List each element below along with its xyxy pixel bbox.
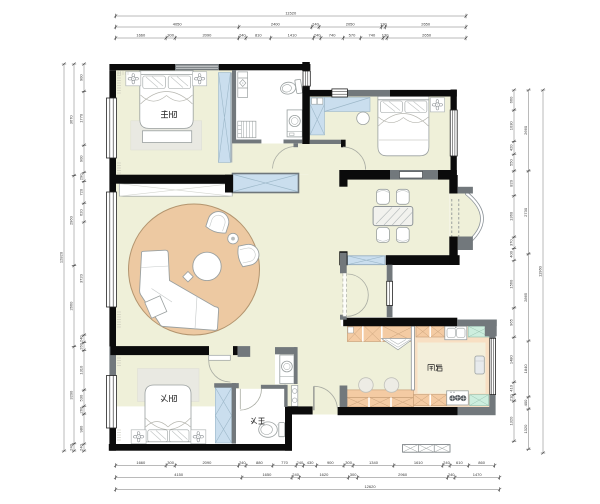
svg-text:290: 290 (79, 173, 84, 180)
svg-text:260: 260 (79, 342, 84, 349)
svg-text:130: 130 (382, 33, 389, 38)
svg-text:240: 240 (448, 472, 455, 477)
svg-text:1770: 1770 (79, 113, 84, 123)
svg-text:2660: 2660 (69, 301, 74, 311)
svg-text:240: 240 (79, 335, 84, 342)
svg-text:240: 240 (292, 472, 299, 477)
svg-text:900: 900 (79, 74, 84, 81)
svg-text:2400: 2400 (271, 22, 281, 27)
svg-text:400: 400 (523, 399, 528, 406)
svg-text:1610: 1610 (414, 460, 424, 465)
svg-text:2960: 2960 (398, 472, 408, 477)
svg-text:610: 610 (456, 460, 463, 465)
svg-text:1480: 1480 (509, 354, 514, 364)
svg-text:240: 240 (297, 460, 304, 465)
svg-text:260: 260 (79, 406, 84, 413)
svg-text:4150: 4150 (174, 472, 184, 477)
svg-text:370: 370 (509, 239, 514, 246)
svg-text:2865: 2865 (523, 292, 528, 302)
svg-text:12820: 12820 (59, 251, 64, 263)
svg-text:1360: 1360 (509, 211, 514, 221)
svg-text:240: 240 (312, 22, 319, 27)
svg-text:1650: 1650 (262, 472, 272, 477)
svg-text:1410: 1410 (288, 33, 298, 38)
svg-text:240: 240 (314, 33, 321, 38)
svg-text:3200: 3200 (69, 390, 74, 400)
svg-text:12620: 12620 (364, 484, 376, 489)
svg-text:2090: 2090 (202, 460, 212, 465)
svg-text:2050: 2050 (346, 22, 356, 27)
svg-text:720: 720 (79, 188, 84, 195)
svg-text:11960: 11960 (538, 265, 543, 277)
svg-text:2660: 2660 (523, 125, 528, 135)
svg-text:240: 240 (79, 443, 84, 450)
svg-text:420: 420 (509, 144, 514, 151)
svg-text:900: 900 (327, 460, 334, 465)
svg-text:1660: 1660 (136, 33, 146, 38)
svg-text:240: 240 (239, 33, 246, 38)
svg-text:530: 530 (79, 394, 84, 401)
svg-text:1340: 1340 (369, 460, 379, 465)
svg-text:3720: 3720 (79, 273, 84, 283)
svg-text:1560: 1560 (509, 279, 514, 289)
svg-text:660: 660 (509, 96, 514, 103)
svg-text:240: 240 (443, 460, 450, 465)
svg-text:570: 570 (349, 33, 356, 38)
svg-text:400: 400 (509, 250, 514, 257)
svg-text:860: 860 (478, 460, 485, 465)
svg-text:1310: 1310 (79, 365, 84, 375)
svg-text:770: 770 (281, 460, 288, 465)
svg-text:820: 820 (509, 179, 514, 186)
svg-text:1840: 1840 (523, 364, 528, 374)
svg-text:1320: 1320 (509, 416, 514, 426)
svg-text:240: 240 (69, 443, 74, 450)
svg-text:240: 240 (239, 460, 246, 465)
svg-text:1470: 1470 (473, 472, 483, 477)
svg-text:2650: 2650 (422, 33, 432, 38)
svg-text:620: 620 (79, 208, 84, 215)
svg-text:965: 965 (509, 318, 514, 325)
svg-text:740: 740 (369, 33, 376, 38)
svg-text:740: 740 (329, 33, 336, 38)
svg-text:300: 300 (345, 460, 352, 465)
svg-text:3670: 3670 (69, 115, 74, 125)
svg-text:550: 550 (509, 158, 514, 165)
svg-text:430: 430 (307, 460, 314, 465)
svg-text:880: 880 (256, 460, 263, 465)
svg-text:130: 130 (380, 22, 387, 27)
svg-text:210: 210 (509, 394, 514, 401)
svg-text:900: 900 (79, 155, 84, 162)
svg-text:300: 300 (167, 33, 174, 38)
svg-text:2730: 2730 (523, 207, 528, 217)
svg-text:1620: 1620 (319, 472, 329, 477)
svg-text:1320: 1320 (523, 424, 528, 434)
svg-text:300: 300 (167, 460, 174, 465)
svg-text:1030: 1030 (509, 121, 514, 131)
svg-text:810: 810 (255, 33, 262, 38)
svg-text:980: 980 (79, 425, 84, 432)
svg-text:410: 410 (509, 384, 514, 391)
svg-text:2650: 2650 (421, 22, 431, 27)
svg-text:2090: 2090 (202, 33, 212, 38)
svg-text:300: 300 (350, 472, 357, 477)
svg-text:4050: 4050 (173, 22, 183, 27)
svg-text:11520: 11520 (285, 11, 297, 16)
svg-text:2960: 2960 (69, 215, 74, 225)
svg-text:1660: 1660 (136, 460, 146, 465)
